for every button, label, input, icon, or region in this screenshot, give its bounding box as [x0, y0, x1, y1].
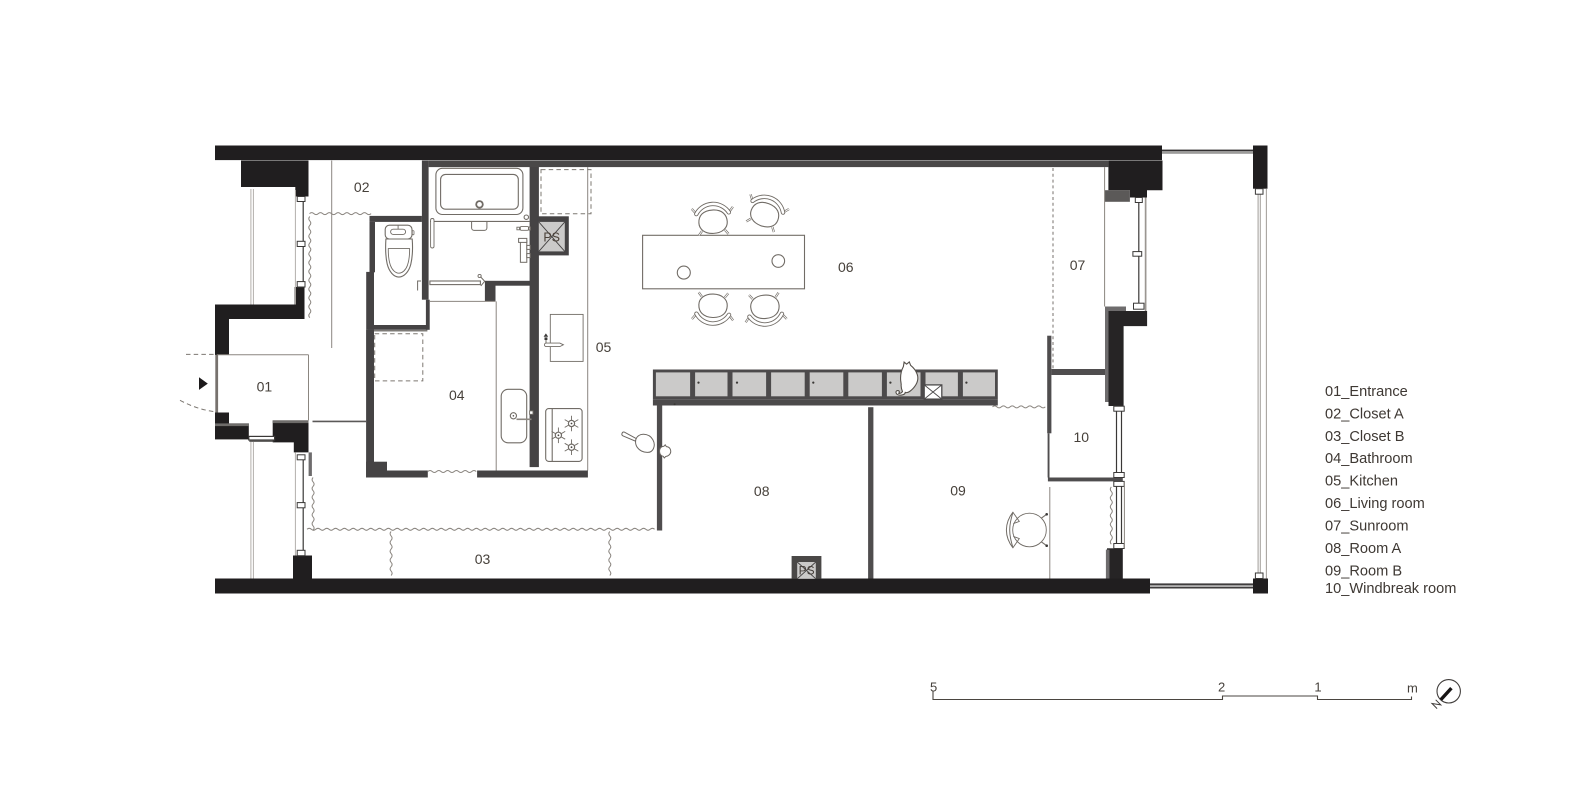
svg-text:03: 03 [475, 551, 491, 567]
svg-text:m: m [1407, 681, 1418, 696]
svg-text:01_Entrance: 01_Entrance [1325, 384, 1408, 400]
svg-text:01: 01 [257, 379, 273, 395]
svg-text:09_Room B: 09_Room B [1325, 564, 1402, 580]
svg-text:02: 02 [354, 179, 370, 195]
svg-text:08: 08 [754, 483, 770, 499]
svg-text:09: 09 [950, 483, 966, 499]
svg-text:5: 5 [930, 680, 937, 695]
svg-text:05: 05 [596, 339, 612, 355]
svg-text:PS: PS [799, 564, 815, 578]
svg-text:02_Closet A: 02_Closet A [1325, 406, 1404, 422]
svg-text:05_Kitchen: 05_Kitchen [1325, 474, 1398, 490]
svg-text:10_Windbreak room: 10_Windbreak room [1325, 581, 1456, 597]
svg-text:04_Bathroom: 04_Bathroom [1325, 451, 1413, 467]
svg-text:PS: PS [543, 231, 560, 245]
svg-text:2: 2 [1218, 680, 1225, 695]
svg-text:07: 07 [1070, 257, 1086, 273]
svg-text:07_Sunroom: 07_Sunroom [1325, 519, 1409, 535]
svg-text:10: 10 [1074, 429, 1090, 445]
svg-text:03_Closet B: 03_Closet B [1325, 429, 1405, 445]
svg-text:08_Room A: 08_Room A [1325, 541, 1402, 557]
svg-text:1: 1 [1314, 680, 1321, 695]
svg-text:06: 06 [838, 259, 854, 275]
svg-text:06_Living room: 06_Living room [1325, 496, 1425, 512]
svg-text:04: 04 [449, 387, 465, 403]
